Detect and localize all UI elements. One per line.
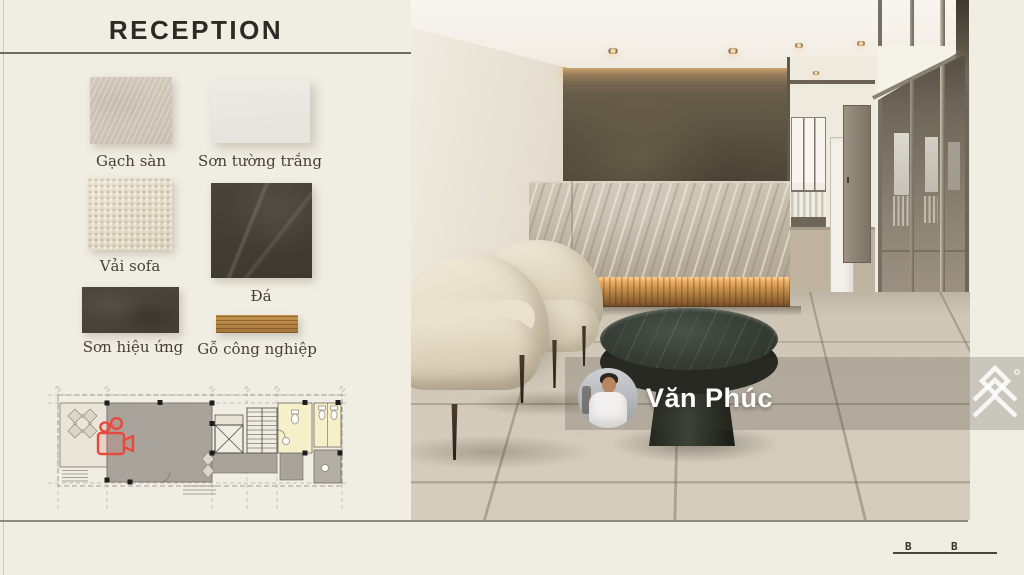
material-label-sofa-fabric: Vải sofa bbox=[70, 257, 190, 275]
watermark-name: Văn Phúc bbox=[646, 383, 773, 414]
page-title: RECEPTION bbox=[0, 15, 392, 46]
plan-entry-steps bbox=[183, 486, 216, 494]
material-label-floor-tile: Gạch sàn bbox=[71, 152, 191, 170]
header-divider bbox=[0, 52, 411, 54]
material-swatch-floor-tile bbox=[90, 77, 172, 144]
glass-reflection bbox=[948, 142, 960, 190]
material-label-stone: Đá bbox=[201, 287, 321, 305]
section-marker-b-left: B bbox=[905, 540, 912, 553]
ceiling-spotlight bbox=[607, 48, 619, 54]
glass-reflection-balustrade bbox=[893, 196, 910, 226]
reception-render bbox=[411, 0, 970, 520]
material-swatch-engineered-wood bbox=[216, 315, 298, 333]
brand-logo-icon bbox=[966, 363, 1024, 429]
hallway-frame-beam bbox=[790, 80, 881, 84]
material-label-white-paint: Sơn tường trắng bbox=[185, 152, 335, 170]
plan-elevator bbox=[215, 415, 243, 453]
plan-corridor bbox=[212, 453, 277, 473]
plan-stair-left bbox=[62, 467, 88, 481]
avatar-shirt bbox=[589, 392, 627, 428]
hallway-wood-door bbox=[843, 105, 871, 263]
avatar-face bbox=[602, 377, 616, 393]
left-edge-rule bbox=[3, 0, 4, 575]
footer-divider bbox=[0, 520, 968, 522]
watermark-avatar bbox=[578, 368, 638, 428]
door-handle bbox=[847, 177, 849, 183]
section-marker-b-right: B bbox=[951, 540, 958, 553]
glass-reflection-balustrade bbox=[924, 196, 938, 223]
glass-corner-frame bbox=[956, 0, 969, 70]
material-swatch-effect-paint bbox=[82, 287, 179, 333]
floor-plan bbox=[48, 386, 348, 514]
plan-staircase bbox=[247, 408, 277, 453]
glass-reflection bbox=[925, 137, 938, 192]
hallway-spotlight bbox=[812, 71, 820, 75]
material-label-engineered-wood: Gỗ công nghiệp bbox=[187, 340, 327, 358]
material-swatch-stone bbox=[211, 183, 312, 278]
ceiling-spotlight bbox=[727, 48, 739, 54]
reception-desk-wood-base bbox=[597, 277, 790, 307]
ceiling-spotlight bbox=[794, 43, 804, 48]
material-swatch-white-paint bbox=[211, 80, 310, 143]
ceiling-spotlight bbox=[856, 41, 866, 46]
material-label-effect-paint: Sơn hiệu ứng bbox=[63, 338, 203, 356]
material-swatch-sofa-fabric bbox=[88, 178, 172, 250]
hallway-balustrade bbox=[791, 190, 826, 217]
glass-horizontal-rail bbox=[878, 250, 969, 252]
glass-reflection bbox=[894, 133, 909, 195]
